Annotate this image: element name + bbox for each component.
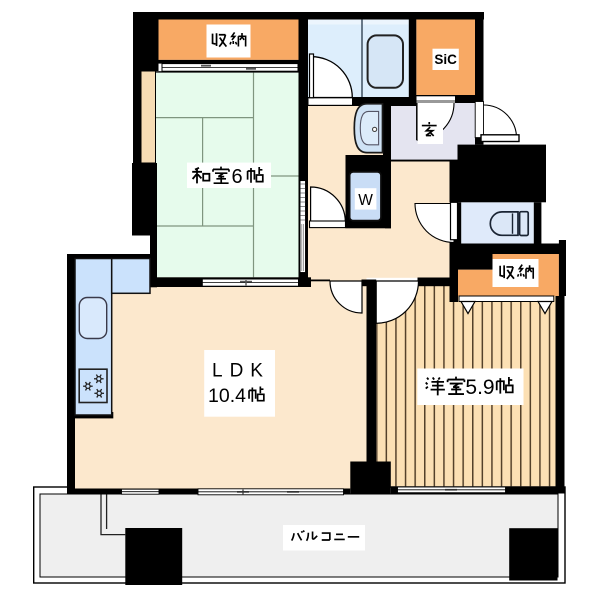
svg-text:10.4: 10.4: [208, 385, 246, 407]
svg-text:W: W: [358, 192, 373, 209]
svg-text:6: 6: [231, 166, 242, 188]
svg-text:LDK: LDK: [212, 361, 270, 382]
svg-text:5.9: 5.9: [465, 376, 494, 399]
svg-text:SiC: SiC: [434, 52, 457, 67]
